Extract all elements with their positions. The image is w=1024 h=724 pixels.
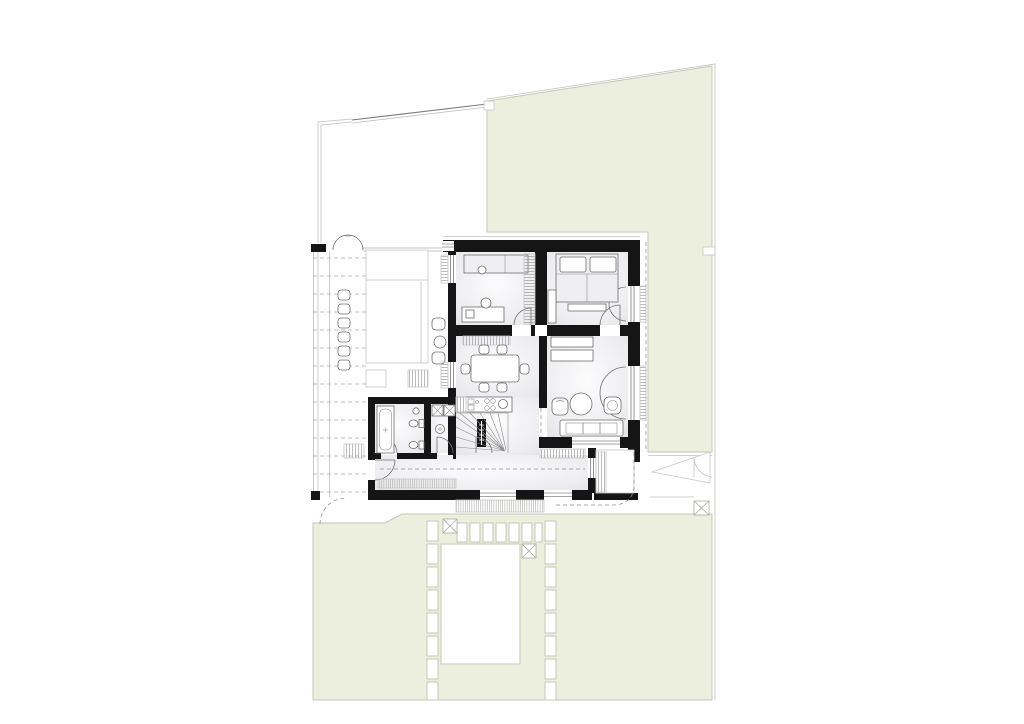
pillow [560,257,586,272]
bedroom-living-divider [547,325,600,336]
armchair [604,397,621,414]
pillow [590,257,616,272]
washer [432,405,443,416]
south-wall-seg [516,490,544,500]
lounge-chair [338,360,350,370]
terrace-chair [432,318,445,330]
stepping-stone [427,544,438,564]
living-south-wall-stub [620,437,628,448]
stepping-stone [545,567,556,587]
bath-hall-wall-seg [397,453,437,459]
desk-chair [481,298,491,308]
terrace-deck [366,250,428,363]
lounge-chair [338,318,350,328]
dryer [444,405,455,416]
hall-south-window [480,490,516,500]
living-porch-window [572,439,620,446]
south-wall-seg [368,490,480,500]
toilet [409,420,424,428]
toilet [409,441,424,449]
paver-row [457,523,542,542]
stepping-stone [545,590,556,610]
kitchen-round-sink [499,400,508,409]
dining-table [471,355,519,382]
lounge-chair [338,304,350,314]
x-marker [522,544,536,558]
north-wall [443,240,640,252]
terrace-south-stub [311,491,320,500]
dining-chair [479,383,489,392]
paver [470,523,480,542]
boundary-gate-marker [703,247,715,255]
tv-bench [551,350,593,361]
dining-chair [497,383,507,392]
x-marker [694,501,709,515]
north-door-opening [442,241,454,251]
kitchen-cabinet-hatch [456,397,466,412]
south-deck-strip [456,500,544,512]
stepping-stone [427,659,438,679]
stepping-stone [545,544,556,564]
paver [496,523,506,542]
storage-bench [408,370,428,387]
stepping-stone [545,659,556,679]
dining-chair [497,345,507,354]
window-sill-hatch [640,366,646,420]
lounge-chair [338,346,350,356]
lower-garden [313,501,712,700]
wardrobe [524,254,535,324]
paver [509,523,519,542]
stepping-stone [545,636,556,656]
stepping-stone [427,590,438,610]
annex-west-wall-stub [368,480,375,490]
stepping-stone [545,521,556,541]
stepping-stones-right [545,521,556,700]
bath-hall-wall-seg [453,453,456,459]
washbasin [413,408,419,414]
window-sill-hatch [441,362,448,388]
living-south-wall [547,437,572,448]
terrace-north-stub [311,244,326,252]
site-plan-drawing [0,0,1024,724]
paver [457,523,467,542]
side-steps [344,444,364,458]
stepping-stone [545,613,556,633]
office-south-wall-stub [531,325,535,336]
sofa [560,420,623,436]
armchair [552,398,568,415]
dining-chair [461,364,470,374]
window-sill-hatch [640,286,646,322]
dining-chair [479,345,489,354]
office-west-window [448,255,456,283]
east-wall-seg [628,252,640,286]
dining-west-window [448,362,456,388]
terrace-seating-set [432,318,446,364]
window-sill-hatch [441,255,448,283]
entry-door-opening [588,458,596,478]
doormat-hatch [378,479,456,488]
x-marker [443,519,457,533]
sideboard-bench [463,336,510,345]
stepping-stone [427,636,438,656]
single-bed [464,255,528,273]
office-bedroom-divider [535,252,547,325]
hall-cabinet [540,449,585,458]
stepping-stone [427,567,438,587]
bed-pillow [478,266,486,274]
deck-step [366,370,386,387]
west-wall-seg [448,252,456,255]
annex-west-wall [368,397,375,460]
living-west-wall [539,336,547,408]
pool [441,544,520,664]
stepping-stone [427,613,438,633]
bath-hall-wall-seg [375,453,381,459]
bedroom-shelf [548,290,556,323]
porch-steps [596,452,606,492]
west-wall-seg [448,388,456,398]
kitchen [456,397,512,412]
annex-north-wall [368,397,456,404]
hall-south-window [544,490,572,500]
desk-item [466,310,474,318]
east-wall-seg [628,322,640,366]
hall-east-wall-seg [588,478,596,493]
sideboard [551,337,593,347]
lounge-chair [338,290,350,300]
stepping-stone [427,521,438,541]
stepping-stone [427,682,438,700]
paver [535,523,542,542]
paver [483,523,493,542]
office-south-wall [456,325,512,336]
bath-laundry-divider [424,404,431,453]
stepping-stones-left [427,521,438,700]
paver [522,523,532,542]
bed-bench [568,304,606,311]
terrace-table [434,336,446,348]
laundry-sink [436,425,445,434]
coffee-table [570,393,592,415]
dining-chair [520,364,529,374]
living-west-wall-stub [539,437,547,448]
stepping-stone [545,682,556,700]
lounge-chair [338,332,350,342]
floor-plan-canvas [0,0,1024,724]
west-wall-seg [448,283,456,362]
hall-east-wall-seg [588,448,596,458]
fence-post-marker [484,101,494,110]
